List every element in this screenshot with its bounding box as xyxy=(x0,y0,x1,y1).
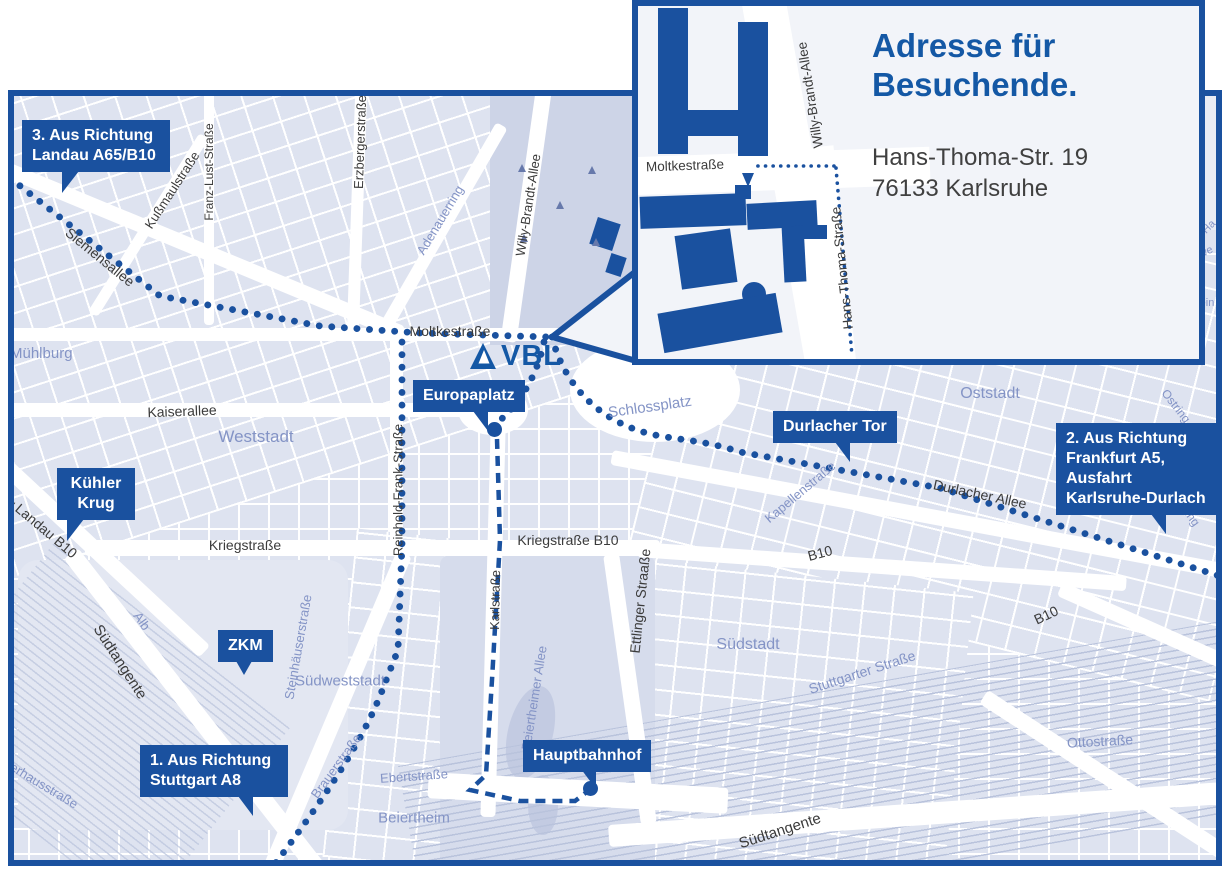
street-label-reinhold-frank-strasse: Reinhold-Frank-Straße xyxy=(391,424,406,556)
callout-tail xyxy=(67,519,84,541)
callout-durlacher-tor: Durlacher Tor xyxy=(773,411,897,443)
callout-kuehler-krug: KühlerKrug xyxy=(57,468,135,520)
vbl-logo-text: VBL xyxy=(501,340,562,373)
callout-tail xyxy=(238,796,253,816)
visitor-address-inset: Moltkestraße Willy-Brandt-Allee Hans-Tho… xyxy=(632,0,1205,365)
district-label-muehlburg: Mühlburg xyxy=(10,345,73,362)
europaplatz-marker xyxy=(487,422,502,437)
inset-title: Adresse fürBesuchende. xyxy=(872,26,1077,104)
callout-route3-landau: 3. Aus RichtungLandau A65/B10 xyxy=(22,120,170,172)
callout-route2-frankfurt: 2. Aus RichtungFrankfurt A5, AusfahrtKar… xyxy=(1056,423,1216,515)
street-label-franz-lust-strasse: Franz-Lust-Straße xyxy=(202,123,216,220)
inset-street-label-moltkestrasse: Moltkestraße xyxy=(646,157,725,175)
callout-tail xyxy=(835,442,850,462)
district-label-beiertheim: Beiertheim xyxy=(378,810,450,827)
karlsruhe-directions-map: Moltkestraße Kaiserallee Kriegstraße Kri… xyxy=(0,0,1230,874)
callout-route1-stuttgart: 1. Aus RichtungStuttgart A8 xyxy=(140,745,288,797)
callout-tail xyxy=(581,769,596,789)
street-label-kaiserallee: Kaiserallee xyxy=(147,402,217,420)
street-label-kriegstrasse-b10: Kriegstraße B10 xyxy=(517,532,618,548)
vbl-triangle-icon xyxy=(470,343,498,370)
callout-zkm: ZKM xyxy=(218,630,273,662)
district-label-suedweststadt: Südweststadt xyxy=(295,673,385,690)
callout-tail xyxy=(1151,514,1166,534)
callout-tail xyxy=(236,661,252,675)
entrance-arrow-icon xyxy=(742,173,754,187)
district-label-weststadt: Weststadt xyxy=(218,427,293,447)
callout-tail xyxy=(473,411,488,431)
street-label-karlstrasse: Karlstraße xyxy=(487,570,503,630)
district-label-suedstadt: Südstadt xyxy=(716,636,779,654)
street-label-moltkestrasse: Moltkestraße xyxy=(410,323,491,339)
callout-hauptbahnhof: Hauptbahnhof xyxy=(523,740,651,772)
callout-tail xyxy=(62,171,79,193)
vbl-logo: VBL xyxy=(470,340,562,373)
callout-europaplatz: Europaplatz xyxy=(413,380,525,412)
inset-address: Hans-Thoma-Str. 1976133 Karlsruhe xyxy=(872,142,1088,204)
street-label-kriegstrasse: Kriegstraße xyxy=(209,537,281,553)
district-label-oststadt: Oststadt xyxy=(960,385,1020,403)
